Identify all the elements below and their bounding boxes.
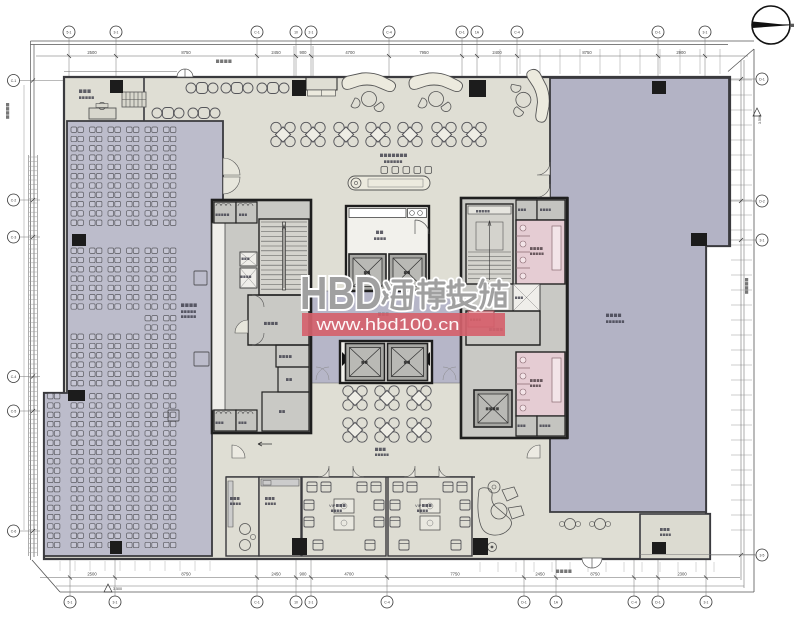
svg-text:C-1: C-1 (11, 79, 17, 83)
svg-text:3-1: 3-1 (704, 600, 709, 604)
svg-text:HBD: HBD (300, 267, 382, 319)
svg-text:3-1: 3-1 (703, 30, 708, 34)
svg-text:3.500: 3.500 (758, 115, 762, 124)
svg-text:2500: 2500 (87, 572, 97, 577)
svg-text:3.500: 3.500 (113, 587, 122, 591)
svg-text:10: 10 (294, 600, 298, 604)
svg-text:C-4: C-4 (386, 30, 392, 34)
svg-text:D-1: D-1 (521, 600, 527, 604)
svg-text:C-4: C-4 (11, 375, 17, 379)
svg-text:900: 900 (300, 50, 308, 55)
svg-text:3-1: 3-1 (760, 238, 765, 242)
svg-text:4700: 4700 (345, 50, 355, 55)
svg-text:D-1: D-1 (459, 30, 465, 34)
svg-text:2-1: 2-1 (309, 600, 314, 604)
svg-text:8750: 8750 (181, 50, 191, 55)
svg-text:3-1: 3-1 (114, 30, 119, 34)
svg-text:8750: 8750 (181, 572, 191, 577)
svg-text:C-1: C-1 (254, 30, 260, 34)
svg-text:C-3: C-3 (11, 235, 17, 239)
svg-text:VIP: VIP (415, 503, 422, 508)
svg-text:C-4: C-4 (631, 600, 637, 604)
svg-text:D-1: D-1 (759, 77, 765, 81)
svg-text:2900: 2900 (676, 50, 686, 55)
svg-text:7750: 7750 (450, 572, 460, 577)
svg-text:C-1: C-1 (254, 600, 260, 604)
svg-text:2450: 2450 (535, 572, 545, 577)
svg-text:1A: 1A (554, 600, 559, 604)
svg-text:2450: 2450 (271, 572, 281, 577)
svg-text:2500: 2500 (87, 50, 97, 55)
svg-text:5-1: 5-1 (67, 30, 72, 34)
svg-text:C-4: C-4 (384, 600, 390, 604)
svg-text:C-6: C-6 (11, 529, 17, 533)
svg-text:C-5: C-5 (11, 409, 17, 413)
svg-text:www.hbd100.cn: www.hbd100.cn (315, 316, 459, 334)
svg-text:2450: 2450 (271, 50, 281, 55)
svg-text:D-1: D-1 (655, 600, 661, 604)
svg-text:D-1: D-1 (655, 30, 661, 34)
svg-text:8750: 8750 (590, 572, 600, 577)
svg-text:D-2: D-2 (759, 199, 765, 203)
svg-text:900: 900 (300, 572, 308, 577)
svg-text:3-1: 3-1 (113, 600, 118, 604)
svg-text:8750: 8750 (582, 50, 592, 55)
svg-text:4700: 4700 (344, 572, 354, 577)
svg-text:2-1: 2-1 (309, 30, 314, 34)
svg-text:5-1: 5-1 (68, 600, 73, 604)
svg-text:3-5: 3-5 (760, 553, 765, 557)
svg-text:C-4: C-4 (514, 30, 520, 34)
svg-text:2400: 2400 (492, 50, 502, 55)
svg-text:C-2: C-2 (11, 198, 17, 202)
svg-text:VIP: VIP (329, 503, 336, 508)
svg-text:10: 10 (294, 30, 298, 34)
svg-text:7950: 7950 (419, 50, 429, 55)
svg-text:1A: 1A (475, 30, 480, 34)
svg-text:2300: 2300 (677, 572, 687, 577)
